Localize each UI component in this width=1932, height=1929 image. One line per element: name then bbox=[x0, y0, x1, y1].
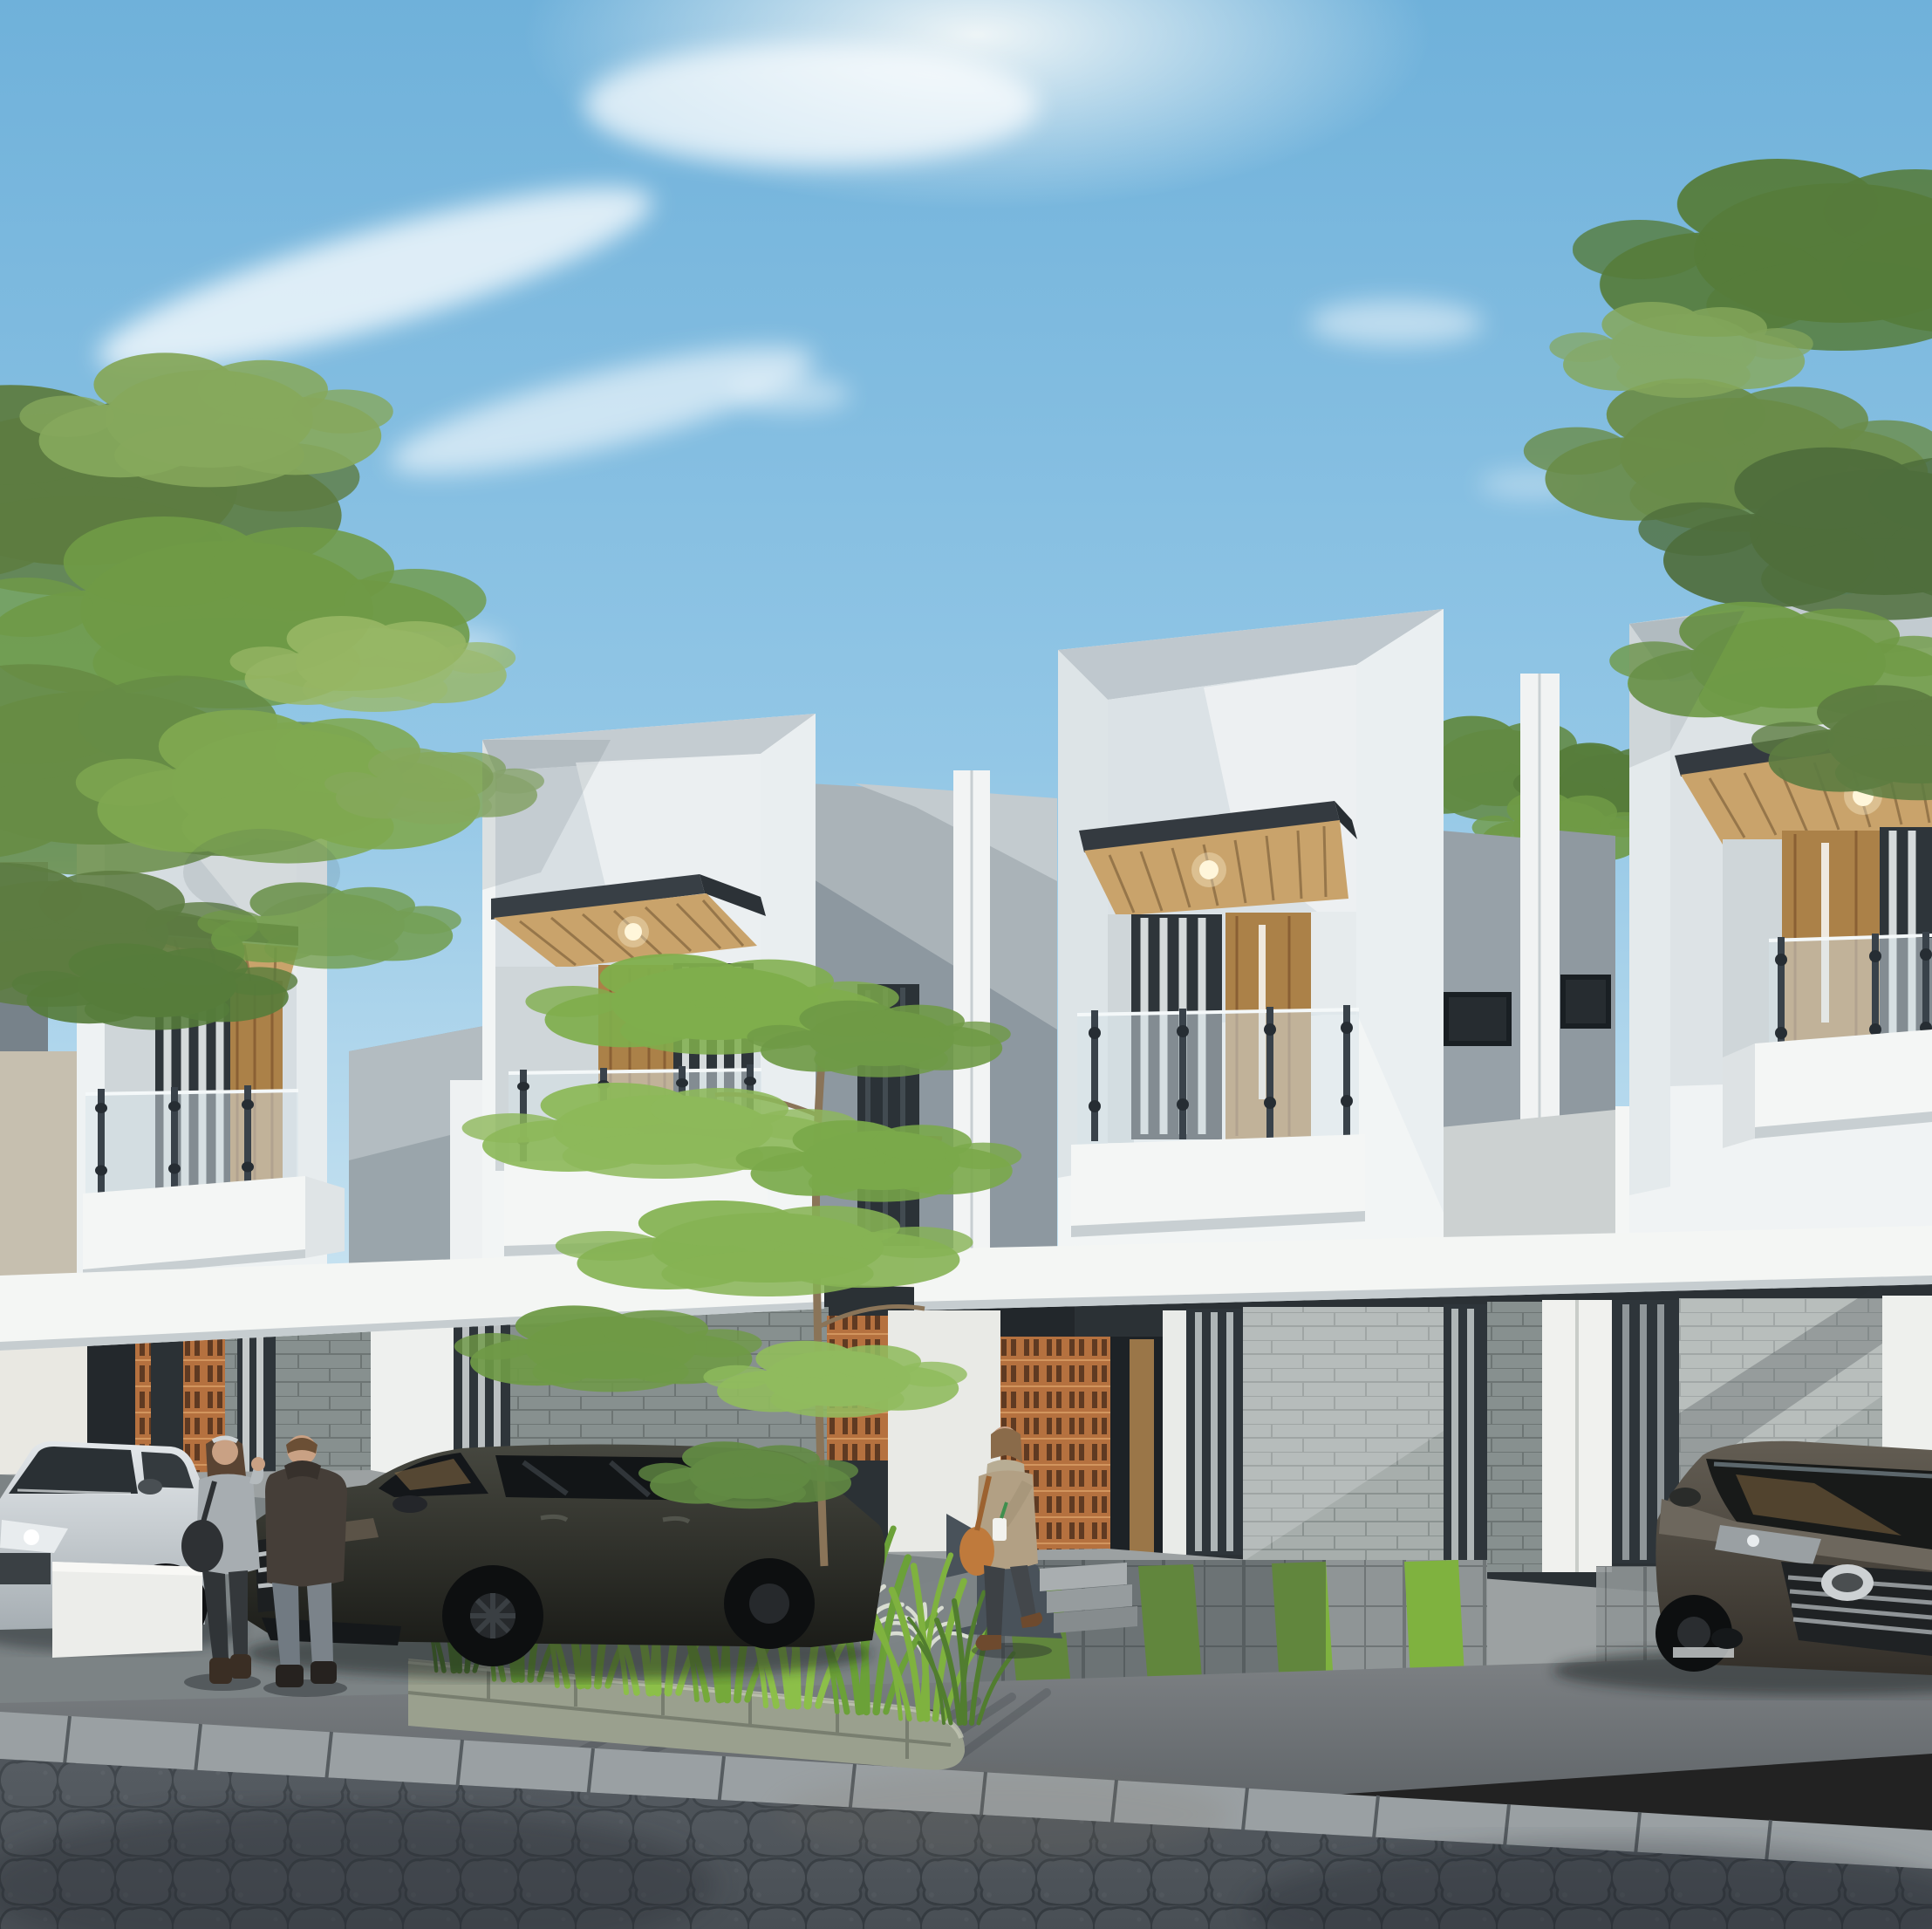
dark-suv-mirror bbox=[393, 1495, 427, 1513]
woman-left-boots bbox=[209, 1658, 232, 1684]
render-canvas bbox=[0, 0, 1932, 1929]
house3-glass-balustrade bbox=[1077, 1012, 1359, 1145]
left-edge-beige-wall bbox=[0, 1051, 77, 1289]
low-white-wall bbox=[52, 1562, 202, 1658]
house3-ground-window-2 bbox=[1444, 1304, 1487, 1570]
house-3 bbox=[1058, 609, 1444, 1263]
clerestory-window-right bbox=[1563, 977, 1608, 1026]
porch-clerestory bbox=[990, 1303, 1075, 1337]
woman-left-bag bbox=[181, 1520, 223, 1572]
gap-house1-house2 bbox=[349, 1025, 488, 1287]
man-left-jacket bbox=[265, 1466, 347, 1586]
townhouse-render bbox=[0, 0, 1932, 1929]
woman-left-head bbox=[212, 1439, 238, 1465]
coffee-cup bbox=[993, 1518, 1007, 1541]
silver-suv-mirror bbox=[138, 1479, 162, 1495]
walking-woman-leg-front bbox=[984, 1565, 1005, 1637]
toyota-mirror bbox=[1669, 1488, 1701, 1507]
walking-woman-shoe-front bbox=[975, 1635, 1001, 1651]
silver-suv-grille bbox=[0, 1553, 51, 1584]
man-left-shoes bbox=[276, 1665, 304, 1687]
clerestory-window-left bbox=[1446, 995, 1509, 1043]
